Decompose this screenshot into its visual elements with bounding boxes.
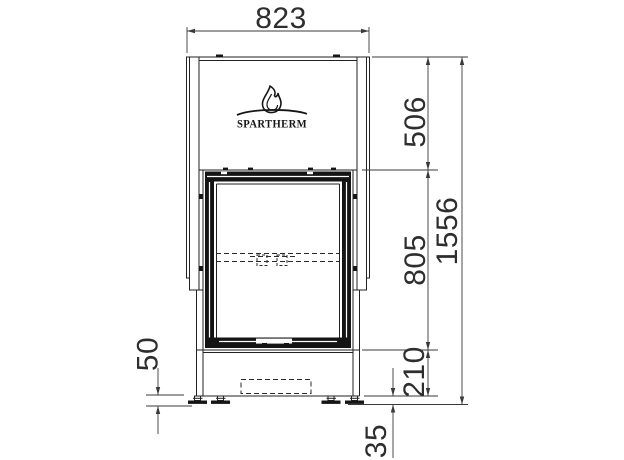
- dim-label-foot-adjustment: 50: [132, 337, 165, 371]
- left-side-rail: [187, 57, 204, 290]
- dimension-foot-adjustment: 50: [132, 337, 193, 434]
- door-handle: [256, 339, 292, 344]
- foot: [188, 396, 207, 404]
- dimension-hood-height: 506: [399, 57, 432, 170]
- hidden-internal-lines: [216, 254, 340, 266]
- foot: [322, 396, 341, 404]
- right-side-rail: [353, 57, 370, 290]
- top-tick-right: [333, 55, 340, 58]
- dim-label-overall-height: 1556: [431, 197, 464, 266]
- flame-icon: [262, 86, 281, 113]
- front-view-diagram: SPARTHERM 823 506 805 210: [0, 0, 624, 460]
- top-tick-left: [216, 55, 223, 58]
- foot: [345, 396, 364, 404]
- dim-label-hood-height: 506: [399, 96, 432, 148]
- fireplace-technical-drawing: SPARTHERM 823 506 805 210: [0, 0, 624, 460]
- vent-opening: [241, 380, 311, 394]
- base-box: [197, 350, 360, 396]
- brand-name: SPARTHERM: [237, 119, 307, 131]
- adjustable-feet: [188, 396, 364, 404]
- dim-label-overall-width: 823: [255, 2, 307, 35]
- dim-label-base-height: 210: [398, 346, 431, 398]
- fireplace-body: SPARTHERM: [187, 55, 370, 404]
- foot: [211, 396, 230, 404]
- dim-label-floor-clearance: 35: [360, 424, 393, 458]
- hood-panel: [199, 55, 357, 171]
- dimension-overall-height: 1556: [431, 57, 464, 405]
- brand-logo: SPARTHERM: [237, 86, 307, 131]
- dimension-base-height: 210: [398, 346, 431, 398]
- dimension-floor-clearance: 35: [360, 368, 395, 458]
- door-frame: [205, 172, 351, 349]
- dimension-door-height: 805: [399, 170, 432, 350]
- dimension-overall-width: 823: [187, 2, 369, 53]
- dim-label-door-height: 805: [399, 234, 432, 286]
- firebox-walls: [197, 170, 360, 396]
